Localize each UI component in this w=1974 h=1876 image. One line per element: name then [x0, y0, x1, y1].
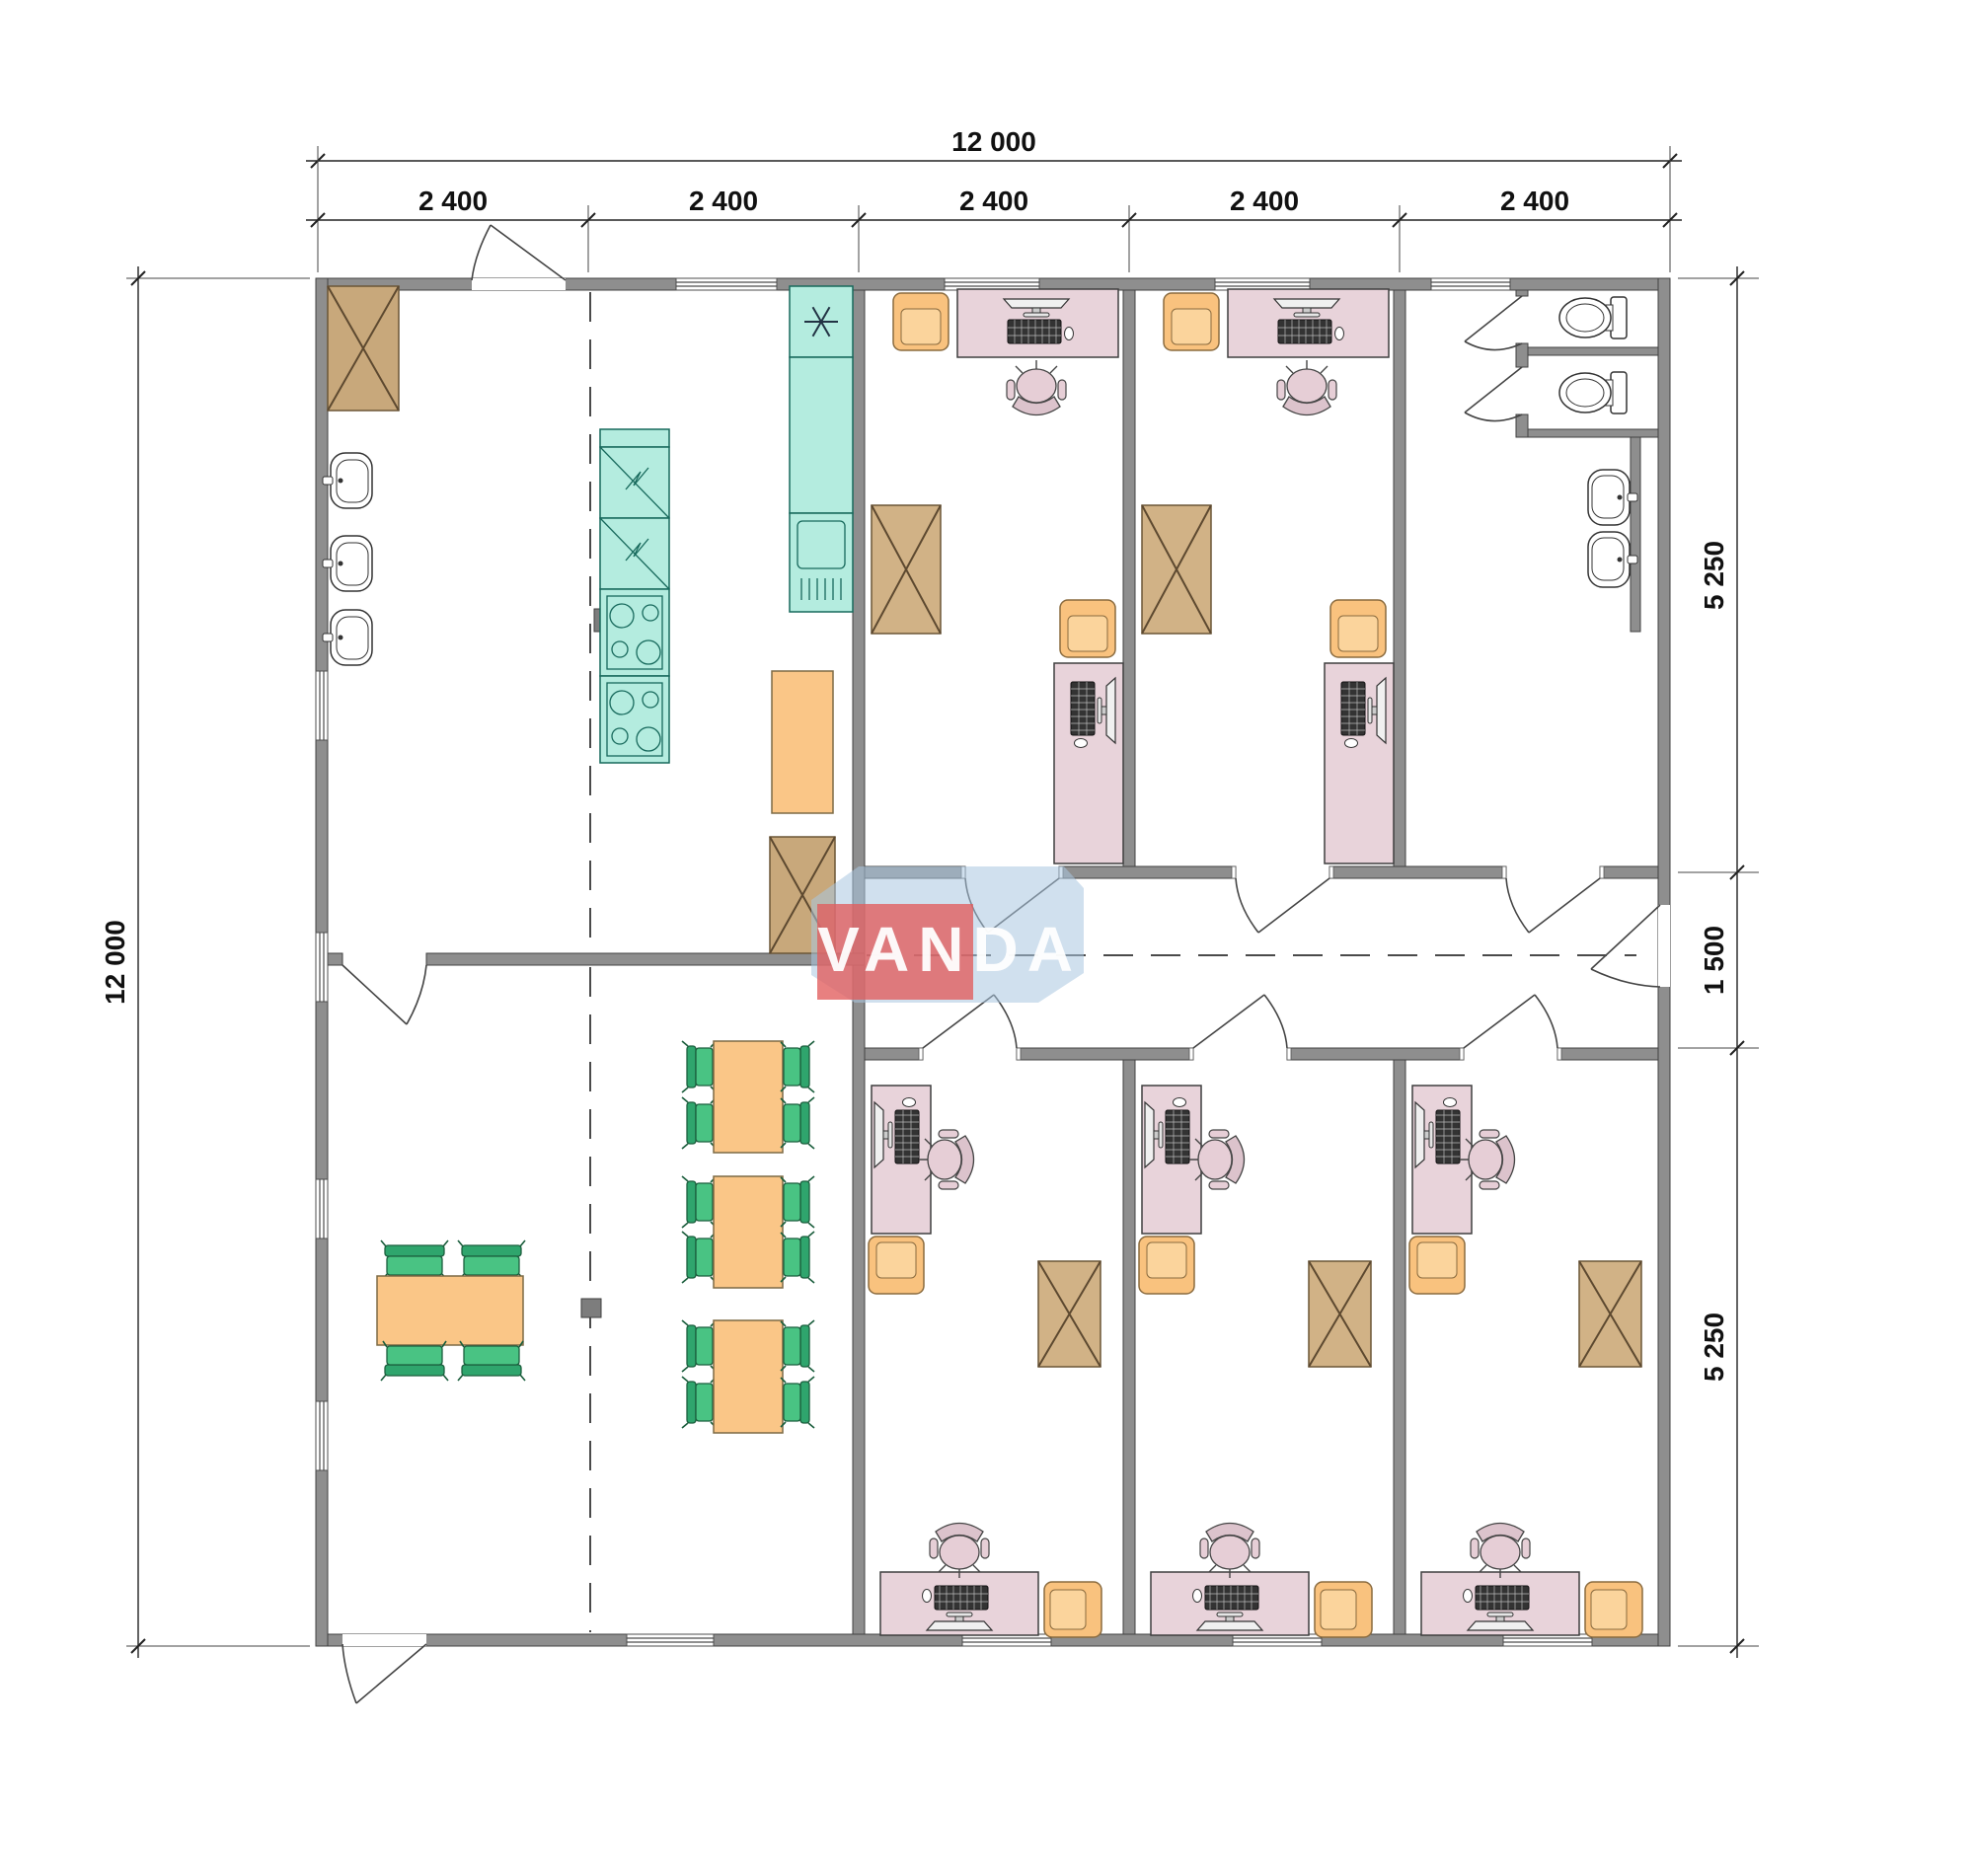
wash-basin: [323, 610, 372, 665]
kitchen-tall-unit: [600, 429, 669, 763]
dining-table-group: [682, 1041, 814, 1153]
dining-table: [714, 1320, 783, 1433]
guest-armchair: [1330, 600, 1386, 657]
entrance-door: [472, 225, 566, 290]
room-office-bottom-1: [869, 1086, 1101, 1637]
window: [962, 1634, 1051, 1646]
dim-label-module-5: 2 400: [1500, 186, 1569, 216]
wardrobe: [872, 505, 941, 634]
guest-armchair: [869, 1237, 924, 1294]
room-wc: [1559, 297, 1637, 587]
wardrobe: [1038, 1261, 1101, 1367]
floor-plan-drawing: 12 000 2 400 2 400 2 400 2 400 2 400 12 …: [0, 0, 1974, 1876]
dim-label-module-3: 2 400: [959, 186, 1028, 216]
guest-armchair: [1409, 1237, 1465, 1294]
dishwasher: [790, 513, 853, 612]
dim-label-module-1: 2 400: [418, 186, 488, 216]
window: [627, 1634, 714, 1646]
dim-label-right-top: 5 250: [1699, 541, 1729, 610]
task-chair: [1471, 1524, 1530, 1579]
dining-table-group: [682, 1176, 814, 1288]
window: [945, 278, 1039, 290]
task-chair: [930, 1524, 989, 1579]
dim-label-module-2: 2 400: [689, 186, 758, 216]
window: [316, 1401, 328, 1470]
exterior-door: [342, 1634, 426, 1703]
window: [1215, 278, 1310, 290]
dining-table-group: [682, 1320, 814, 1433]
guest-armchair: [893, 293, 949, 350]
dim-label-total-height: 12 000: [100, 920, 130, 1005]
room-office-bottom-2: [1139, 1086, 1372, 1637]
dim-label-right-mid: 1 500: [1699, 926, 1729, 995]
guest-armchair: [1164, 293, 1219, 350]
room-entrance-hall-kitchen: [323, 286, 853, 953]
fridge: [600, 447, 669, 518]
task-chair: [1200, 1524, 1259, 1579]
task-chair: [1007, 360, 1066, 415]
office-door: [1464, 995, 1557, 1048]
dimension-top-modules: 2 400 2 400 2 400 2 400 2 400: [306, 186, 1682, 272]
guest-armchair: [1315, 1582, 1372, 1637]
kitchen-counter: [790, 286, 853, 612]
counter-section: [790, 357, 853, 513]
structural-column: [581, 1299, 601, 1317]
dim-label-module-4: 2 400: [1230, 186, 1299, 216]
toilet-cabin-door: [1465, 367, 1522, 421]
floor-plan-page: 12 000 2 400 2 400 2 400 2 400 2 400 12 …: [0, 0, 1974, 1876]
dim-label-total-width: 12 000: [951, 126, 1036, 157]
kitchen-cabinet: [600, 429, 669, 447]
guest-armchair: [1139, 1237, 1194, 1294]
office-door: [1193, 995, 1287, 1048]
toilet: [1559, 372, 1627, 413]
window: [316, 1179, 328, 1238]
vanda-logo: VANDA: [811, 866, 1084, 1003]
toilet: [1559, 297, 1627, 338]
wardrobe: [1142, 505, 1211, 634]
cooktop: [600, 676, 669, 763]
serving-table: [772, 671, 833, 813]
interior-door: [342, 965, 426, 1024]
window: [316, 933, 328, 1002]
wash-basin: [323, 536, 372, 591]
window: [676, 278, 777, 290]
dimension-left: 12 000: [100, 266, 310, 1658]
wardrobe: [1309, 1261, 1371, 1367]
window: [1431, 278, 1510, 290]
window: [1233, 1634, 1322, 1646]
dining-table: [714, 1176, 783, 1288]
dim-label-right-bottom: 5 250: [1699, 1313, 1729, 1382]
room-office-top-1: [872, 289, 1123, 863]
guest-armchair: [1060, 600, 1115, 657]
fridge: [600, 518, 669, 589]
wardrobe: [328, 286, 399, 411]
wardrobe: [1579, 1261, 1641, 1367]
dining-table: [377, 1276, 523, 1345]
dining-table: [714, 1041, 783, 1153]
logo-text: VANDA: [817, 914, 1082, 985]
guest-armchair: [1044, 1582, 1101, 1637]
room-office-bottom-3: [1409, 1086, 1642, 1637]
office-door: [923, 995, 1017, 1048]
wc-lobby-door: [1506, 878, 1600, 933]
corridor-exit-door: [1591, 905, 1670, 987]
dimension-right: 5 250 1 500 5 250: [1678, 266, 1759, 1658]
guest-armchair: [1585, 1582, 1642, 1637]
wash-basin: [323, 453, 372, 508]
task-chair: [1277, 360, 1336, 415]
office-door: [1236, 878, 1329, 933]
dining-table-group: [377, 1240, 525, 1381]
room-dining: [377, 1041, 814, 1433]
window: [316, 671, 328, 740]
toilet-cabin-door: [1465, 296, 1522, 350]
window: [1503, 1634, 1592, 1646]
room-office-top-2: [1142, 289, 1394, 863]
cooktop: [600, 589, 669, 676]
